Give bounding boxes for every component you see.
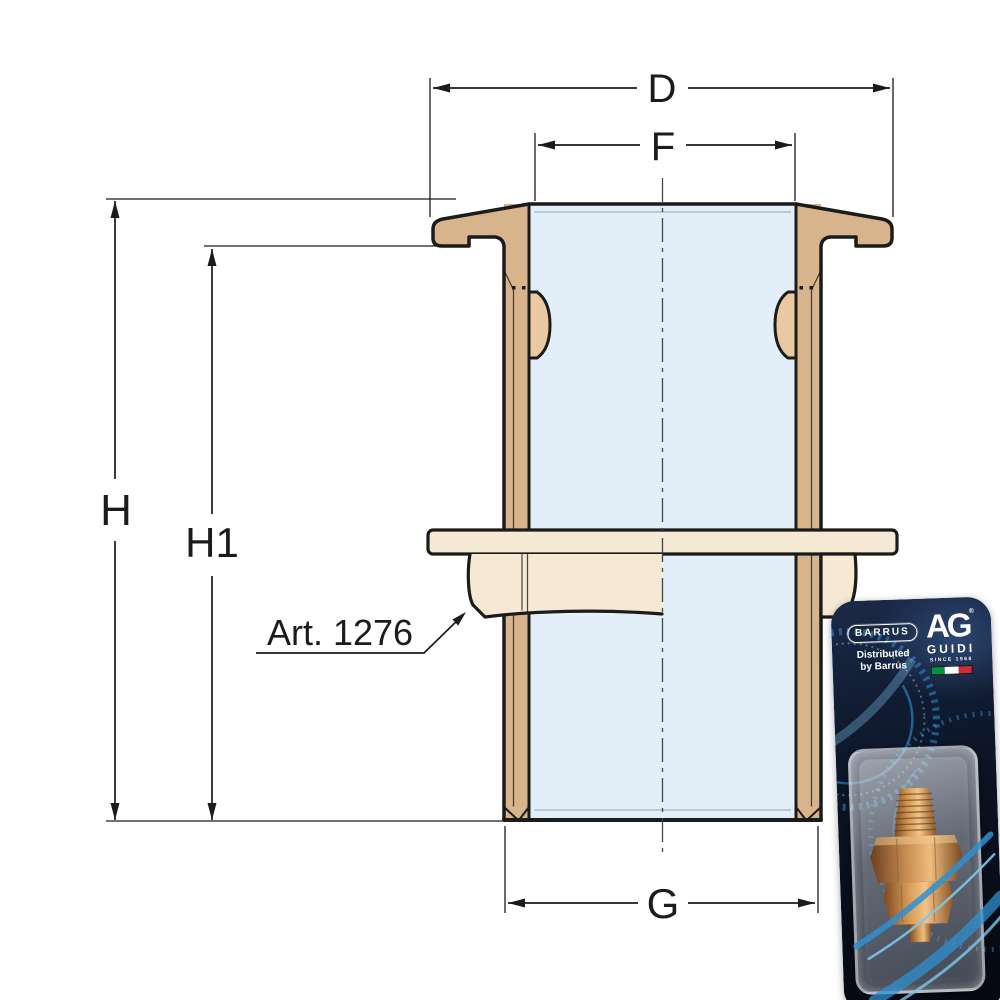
dim-label-d: D — [648, 67, 677, 111]
dim-label-f: F — [651, 125, 675, 169]
dim-label-g: G — [647, 880, 680, 927]
part-number-label: Art. 1276 — [267, 612, 413, 653]
nut-left-half — [468, 554, 662, 617]
page: D F H H1 G Art. 1276 BARRUS Distribut — [0, 0, 1000, 1000]
dim-label-h1: H1 — [185, 519, 239, 566]
dim-label-h: H — [100, 486, 132, 535]
product-packaging: BARRUS Distributed by Barrus AG® GUIDI S… — [830, 596, 1000, 1000]
packaging-swoosh-graphics — [830, 596, 1000, 1000]
